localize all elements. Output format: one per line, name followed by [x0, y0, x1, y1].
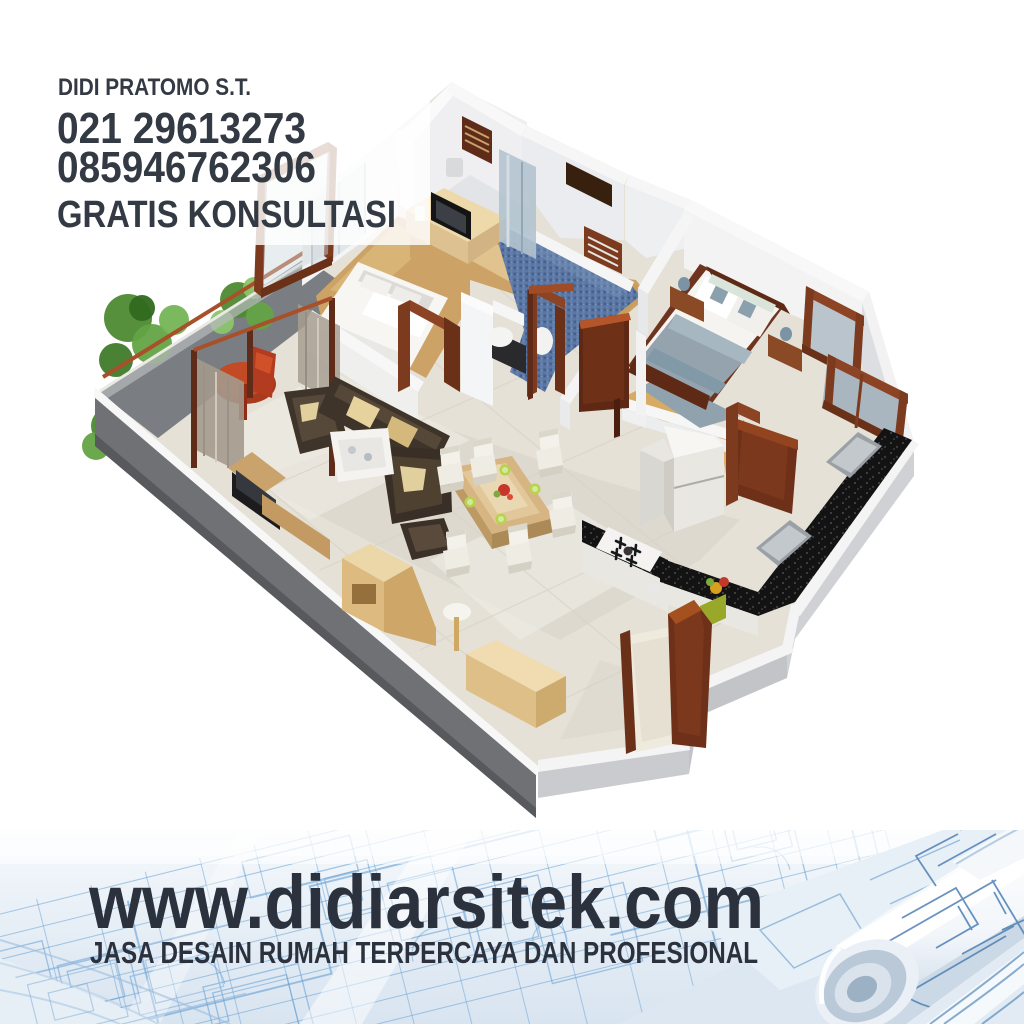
svg-text:JASA DESAIN RUMAH TERPERCAYA D: JASA DESAIN RUMAH TERPERCAYA DAN PROFESI…: [90, 935, 758, 970]
svg-text:DIDI PRATOMO S.T.: DIDI PRATOMO S.T.: [58, 74, 251, 101]
svg-text:085946762306: 085946762306: [57, 143, 316, 192]
svg-text:GRATIS KONSULTASI: GRATIS KONSULTASI: [57, 194, 396, 236]
svg-text:www.didiarsitek.com: www.didiarsitek.com: [88, 860, 764, 945]
